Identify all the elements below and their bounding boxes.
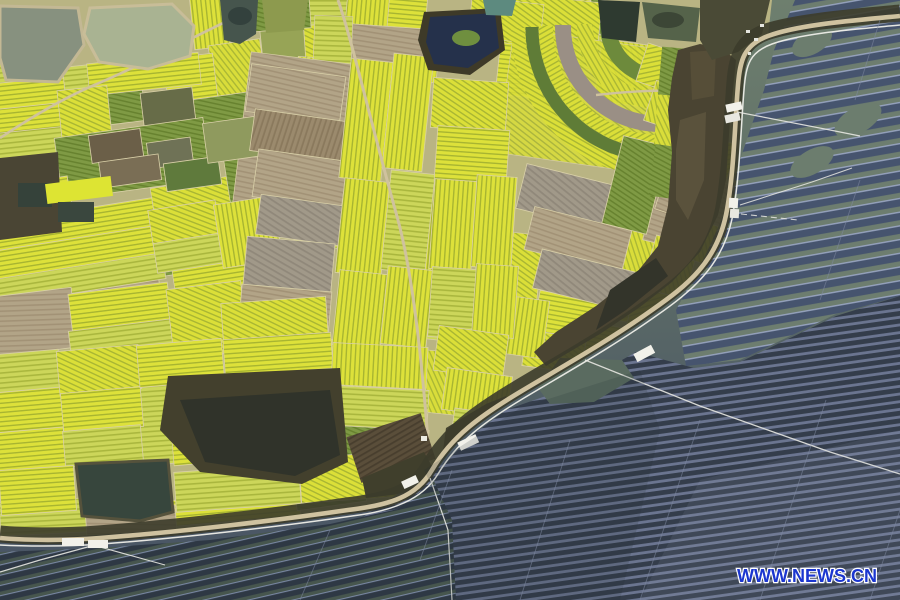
svg-text:WWW.NEWS.CN: WWW.NEWS.CN xyxy=(737,566,877,586)
